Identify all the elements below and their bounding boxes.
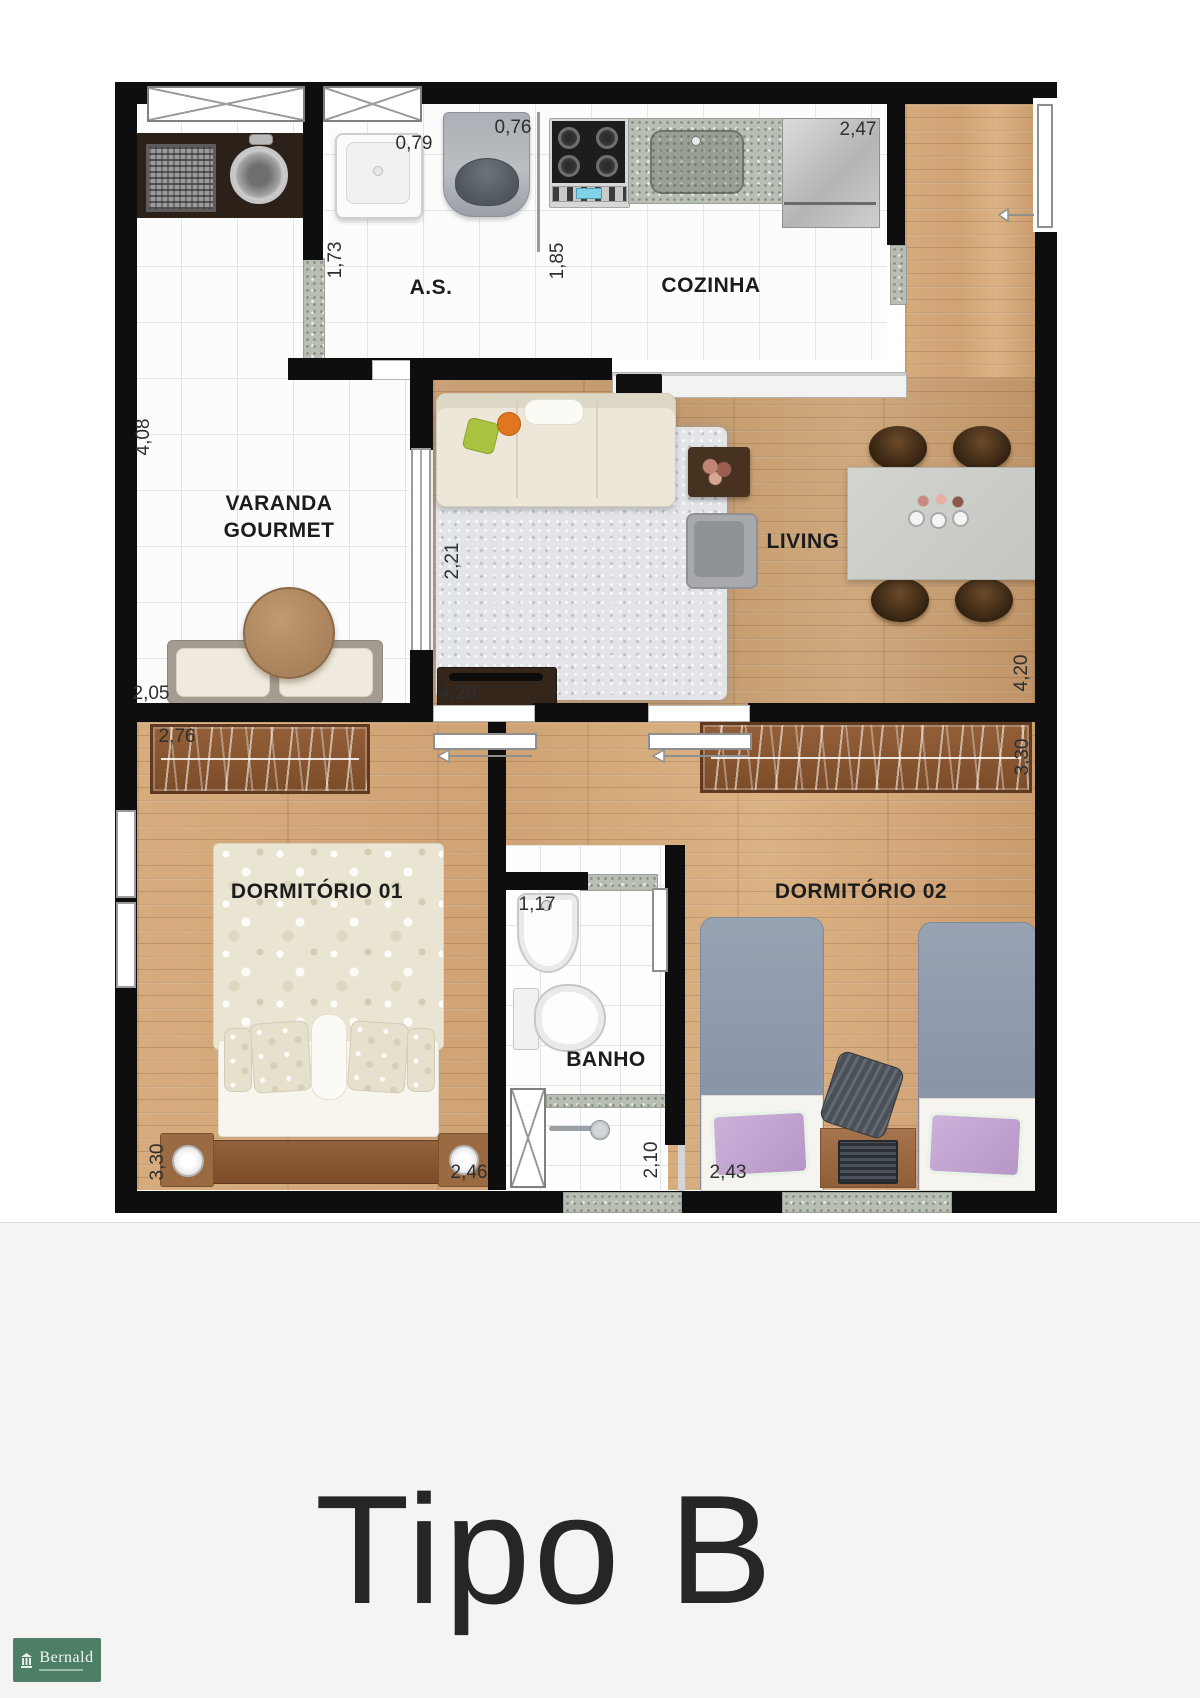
entry-door-arrow-icon	[998, 206, 1036, 224]
bed-bolster-pillow	[311, 1014, 347, 1100]
dining-chair	[871, 578, 929, 622]
dim-as-maquina: 0,76	[495, 117, 532, 139]
sofa-cushion-line	[596, 400, 598, 498]
dim-dorm1-width: 2,46	[451, 1162, 488, 1184]
door-sill	[648, 705, 750, 722]
dim-banho-width: 1,17	[519, 894, 556, 916]
wall-kitchen-entry	[887, 95, 905, 245]
dim-varanda-width: 2,05	[133, 683, 170, 705]
dorm2-door-arrow-icon	[651, 748, 751, 766]
entry-door-leaf	[1037, 104, 1053, 228]
wall-mid-right	[748, 703, 1035, 722]
kitchen-faucet-icon	[691, 136, 701, 146]
toilet-bowl	[534, 984, 606, 1052]
grill-icon	[146, 144, 216, 212]
wall-mid-left	[115, 703, 433, 722]
bed-pillow	[224, 1028, 252, 1092]
stove-burner-icon	[558, 127, 580, 149]
page: { "plan": { "room_labels": { "as": "A.S.…	[0, 0, 1200, 1697]
page-title: Tipo B	[315, 1461, 775, 1639]
room-label-dormitorio2: DORMITÓRIO 02	[775, 878, 947, 905]
brand-name: Bernald	[39, 1649, 93, 1667]
dim-dorm2-width: 2,43	[710, 1162, 747, 1184]
table-cup-icon	[908, 510, 925, 527]
dim-living-rug: 2,21	[442, 543, 464, 580]
dim-banho-height: 2,10	[641, 1142, 663, 1179]
soundbar-icon	[449, 673, 543, 681]
dining-chair	[953, 426, 1011, 470]
table-cup-icon	[952, 510, 969, 527]
floor-plan: A.S. COZINHA VARANDA GOURMET LIVING DORM…	[0, 0, 1200, 1230]
banho-dorm2-divider	[678, 1145, 685, 1191]
table-flowers-icon	[912, 492, 968, 510]
wall-banho-top	[488, 872, 588, 890]
wall-banho-right	[665, 845, 685, 1145]
wall-right	[1035, 82, 1057, 1213]
dim-dorm2-wardrobe: 3,30	[1012, 739, 1034, 776]
dim-as-left: 1,73	[325, 242, 347, 279]
dim-cozinha-left: 1,85	[547, 243, 569, 280]
brand-text-block: Bernald	[39, 1649, 93, 1671]
wall-varanda-service	[303, 82, 323, 260]
room-label-cozinha: COZINHA	[661, 272, 760, 299]
bed-pillow	[407, 1028, 435, 1092]
dorm2-bottom-window-sill	[782, 1192, 952, 1213]
wall-service-living	[288, 358, 612, 380]
stove-burner-icon	[558, 155, 580, 177]
kitchen-entry-threshold	[890, 245, 907, 305]
door-sill	[433, 705, 535, 722]
dorm1-window	[116, 902, 136, 988]
wall-mid-center	[533, 703, 648, 722]
dim-as-tanque: 0,79	[396, 133, 433, 155]
dim-dorm1-wardrobe: 2,76	[159, 726, 196, 748]
fridge-handle	[784, 202, 876, 205]
banho-door-leaf	[652, 888, 668, 972]
dining-chair	[955, 578, 1013, 622]
faucet-icon	[249, 134, 273, 145]
sofa-pillow-white	[524, 399, 584, 425]
round-sink-icon	[230, 146, 288, 204]
banho-bottom-window-sill	[563, 1192, 682, 1213]
washing-machine-lid	[455, 158, 519, 206]
service-window	[323, 86, 422, 122]
room-label-as: A.S.	[410, 274, 453, 301]
round-table	[243, 587, 335, 679]
entry-hall-floor	[905, 104, 1035, 382]
wall-dorm1-banho	[488, 722, 506, 1190]
dorm1-door-arrow-icon	[436, 748, 536, 766]
laundry-tub-drain	[373, 166, 383, 176]
dining-chair	[869, 426, 927, 470]
armchair-seat	[694, 521, 744, 577]
sofa-pillow-orange	[497, 412, 521, 436]
banho-door-threshold	[580, 874, 658, 891]
dorm1-window	[116, 810, 136, 898]
shower-arm-icon	[549, 1126, 595, 1131]
bed-pillow	[347, 1020, 410, 1094]
wall-varanda-living-top	[410, 358, 433, 450]
banho-box-window	[510, 1088, 546, 1188]
varanda-service-threshold	[303, 258, 325, 360]
dim-living-width: 4,29	[440, 683, 477, 705]
building-icon	[20, 1653, 33, 1668]
lilac-pillow	[926, 1112, 1023, 1179]
coffee-table-flowers-icon	[700, 456, 734, 486]
varanda-living-window	[411, 448, 431, 652]
dim-cozinha-width: 2,47	[840, 119, 877, 141]
shower-head-icon	[590, 1120, 610, 1140]
varanda-window	[147, 86, 305, 122]
lamp-icon	[172, 1145, 204, 1177]
bed-pillow	[250, 1020, 313, 1094]
bed-headboard	[210, 1140, 447, 1184]
room-label-living: LIVING	[766, 528, 839, 555]
service-column-line	[537, 112, 540, 252]
table-cup-icon	[930, 512, 947, 529]
dim-living-height: 4,20	[1011, 655, 1033, 692]
dim-dorm1-height: 3,30	[147, 1144, 169, 1181]
dim-varanda-height: 4,08	[133, 419, 155, 456]
stove-display	[576, 188, 602, 199]
room-label-banho: BANHO	[566, 1046, 646, 1073]
shower-threshold	[546, 1094, 668, 1108]
laptop-icon	[838, 1140, 898, 1184]
room-label-dormitorio1: DORMITÓRIO 01	[231, 878, 403, 905]
brand-tagline-rule	[39, 1669, 83, 1671]
room-label-varanda: VARANDA GOURMET	[224, 490, 335, 545]
tv-icon	[616, 374, 662, 394]
footer-band: Tipo B Bernald	[0, 1222, 1200, 1698]
brand-logo: Bernald	[13, 1638, 101, 1682]
stove-burner-icon	[596, 155, 618, 177]
stove-burner-icon	[596, 127, 618, 149]
wall-left	[115, 82, 137, 1213]
